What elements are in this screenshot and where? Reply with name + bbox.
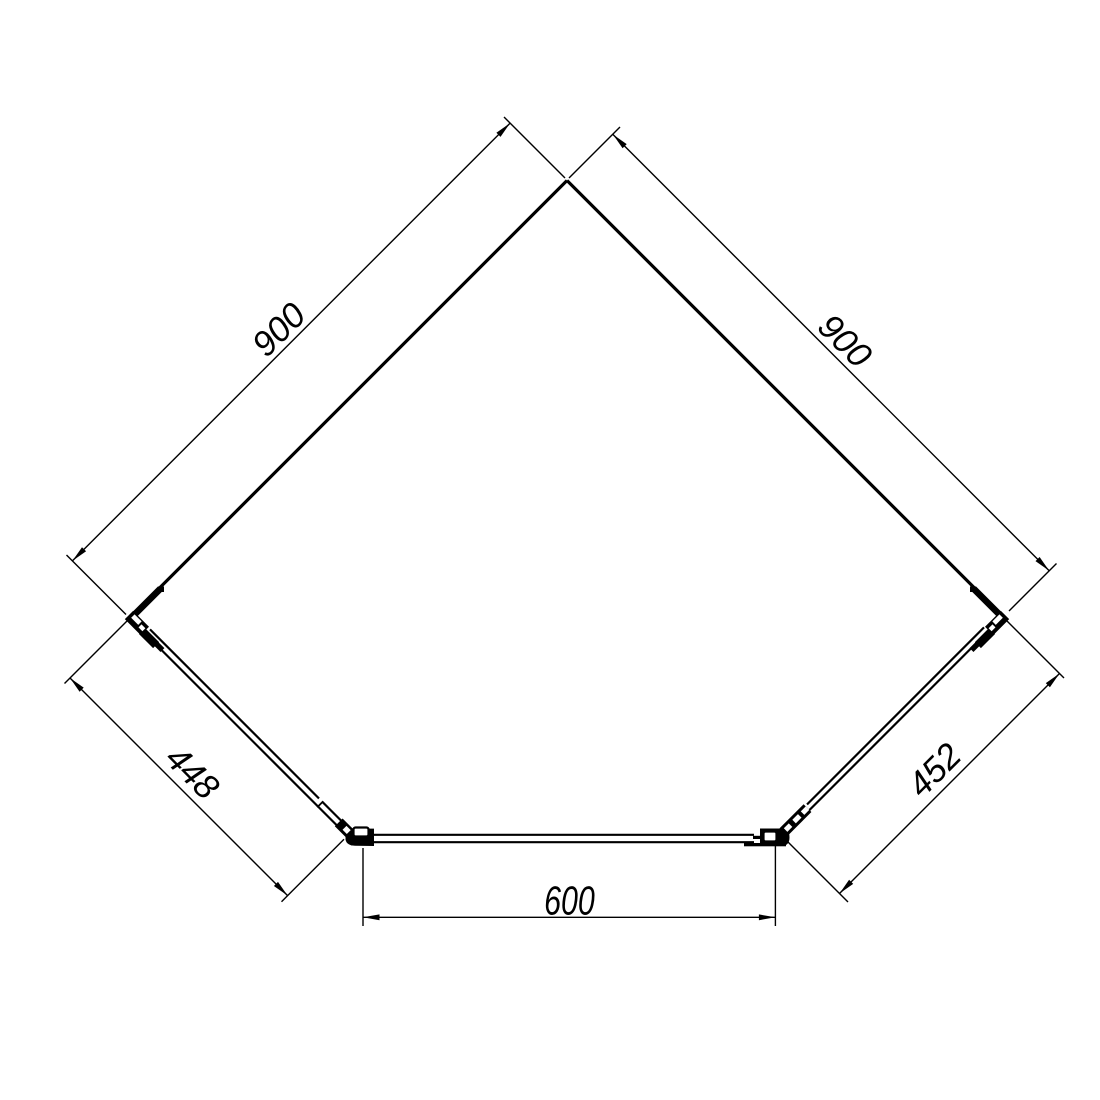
svg-text:600: 600 (544, 878, 595, 923)
